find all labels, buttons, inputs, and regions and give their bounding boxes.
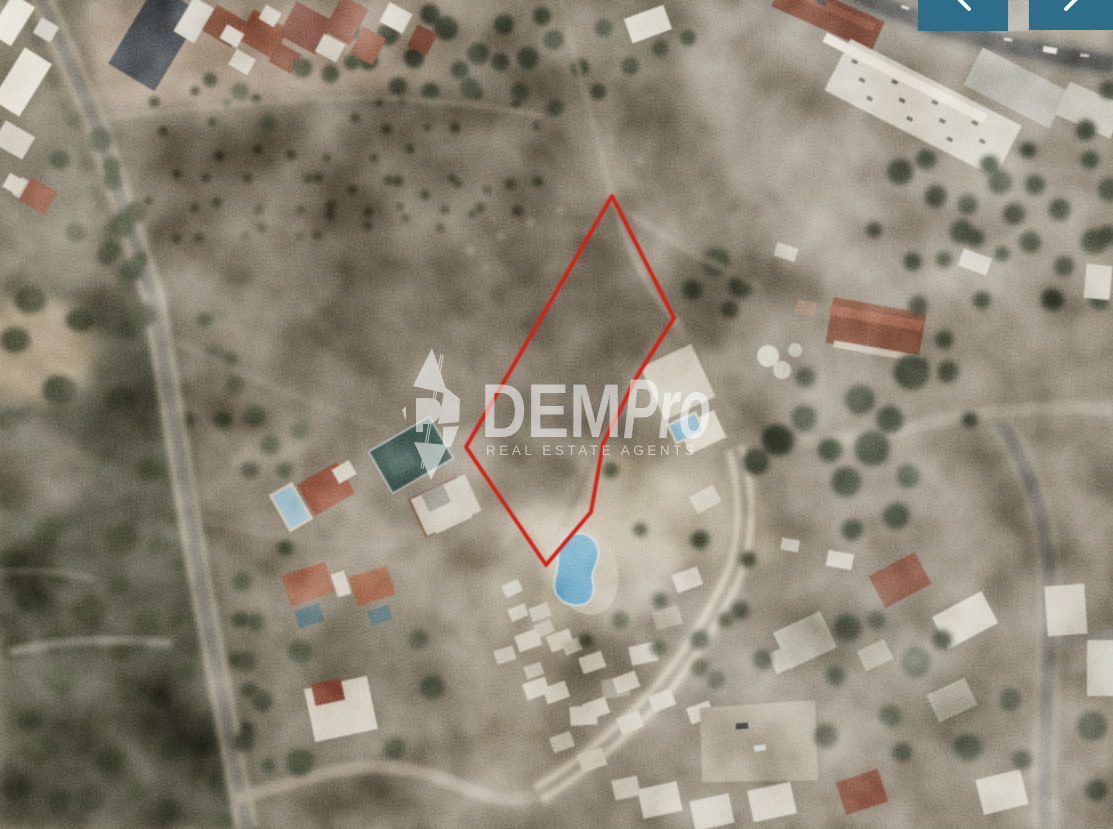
svg-text:REAL ESTATE AGENTS: REAL ESTATE AGENTS <box>486 443 700 458</box>
svg-text:DEM: DEM <box>481 369 622 454</box>
